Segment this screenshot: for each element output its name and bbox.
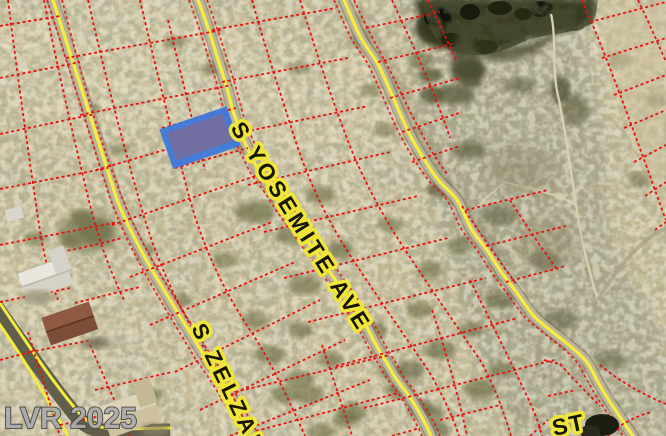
svg-text:LVR 2025: LVR 2025 [4, 402, 137, 435]
